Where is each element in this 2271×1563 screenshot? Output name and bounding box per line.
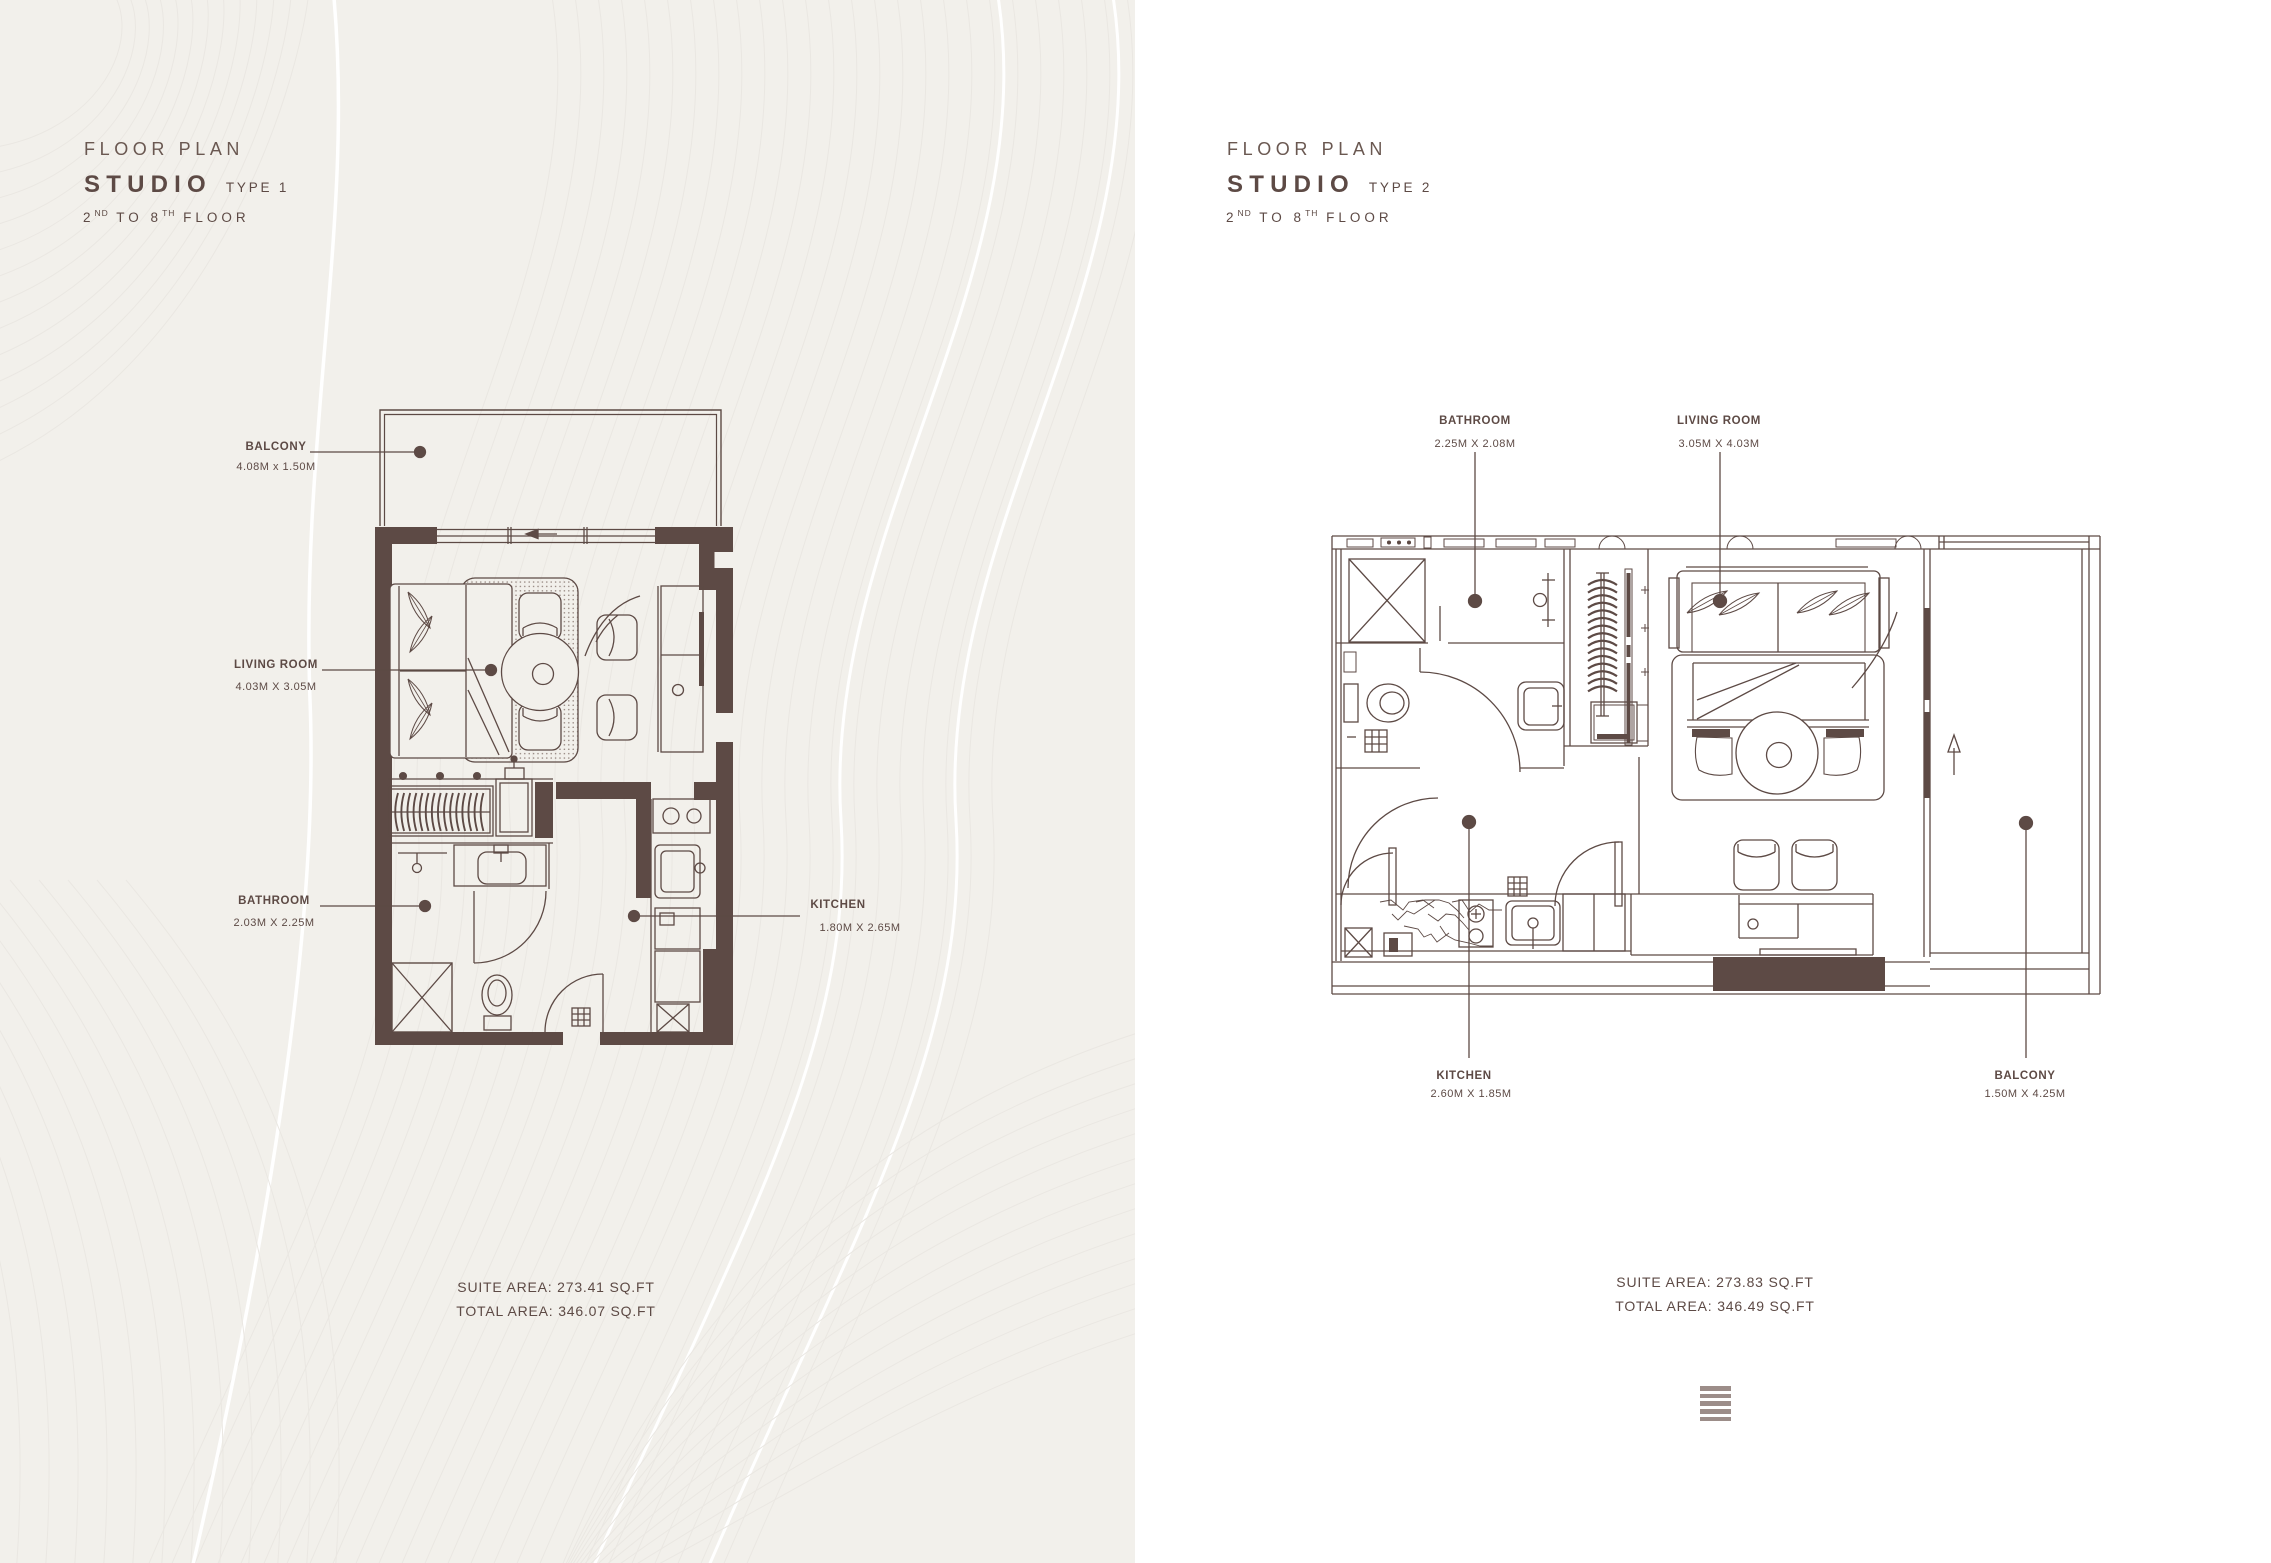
svg-text:2.60M X 1.85M: 2.60M X 1.85M: [1430, 1088, 1511, 1100]
svg-text:1.80M X 2.65M: 1.80M X 2.65M: [819, 922, 900, 934]
svg-text:2.03M X 2.25M: 2.03M X 2.25M: [233, 917, 314, 929]
svg-text:BATHROOM: BATHROOM: [1439, 415, 1511, 427]
svg-text:BALCONY: BALCONY: [245, 441, 306, 453]
svg-text:BATHROOM: BATHROOM: [238, 895, 310, 907]
svg-text:BALCONY: BALCONY: [1994, 1070, 2055, 1082]
svg-text:KITCHEN: KITCHEN: [810, 899, 865, 911]
svg-text:4.03M X 3.05M: 4.03M X 3.05M: [235, 681, 316, 693]
svg-text:LIVING ROOM: LIVING ROOM: [1677, 415, 1761, 427]
svg-text:2.25M X 2.08M: 2.25M X 2.08M: [1434, 438, 1515, 450]
svg-text:4.08M x 1.50M: 4.08M x 1.50M: [236, 461, 315, 473]
svg-text:3.05M X 4.03M: 3.05M X 4.03M: [1678, 438, 1759, 450]
svg-text:LIVING ROOM: LIVING ROOM: [234, 659, 318, 671]
svg-text:KITCHEN: KITCHEN: [1436, 1070, 1491, 1082]
svg-text:1.50M X 4.25M: 1.50M X 4.25M: [1984, 1088, 2065, 1100]
